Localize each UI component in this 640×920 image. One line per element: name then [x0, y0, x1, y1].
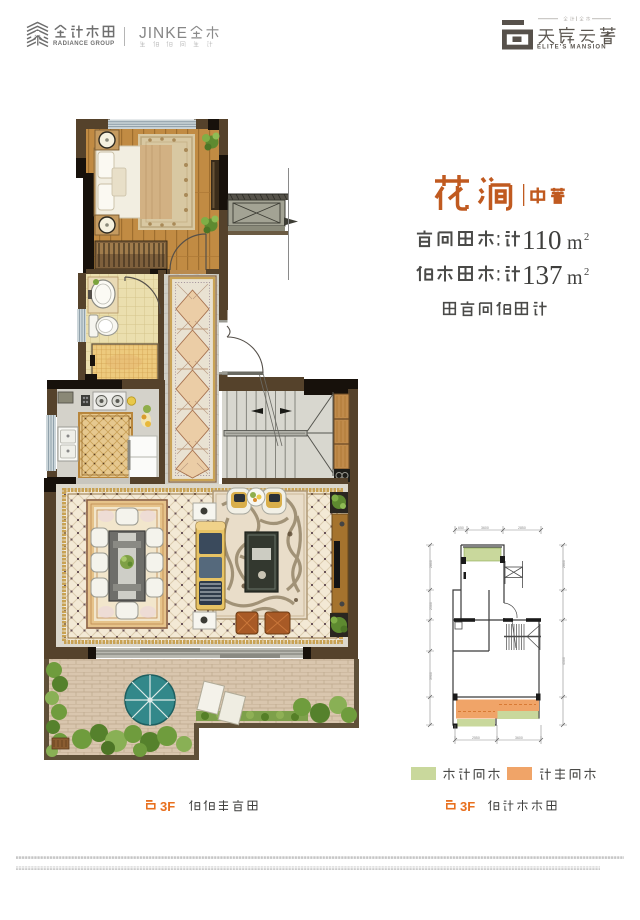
svg-text:2550: 2550 [472, 736, 480, 740]
svg-text:2800: 2800 [429, 560, 433, 568]
svg-text:2: 2 [584, 267, 589, 278]
svg-text:3F: 3F [460, 799, 475, 814]
svg-text:m: m [567, 267, 583, 289]
svg-text:2850: 2850 [518, 526, 526, 530]
svg-text:3600: 3600 [481, 526, 489, 530]
svg-text:ELITE'S MANSION: ELITE'S MANSION [537, 45, 607, 51]
svg-text:2: 2 [584, 232, 589, 243]
svg-text:3F: 3F [160, 799, 175, 814]
svg-text:m: m [567, 232, 583, 254]
svg-text:4500: 4500 [562, 657, 566, 665]
svg-text:137: 137 [522, 260, 563, 290]
svg-text:JINKE: JINKE [139, 25, 188, 42]
svg-text:RADIANCE GROUP: RADIANCE GROUP [53, 41, 115, 47]
svg-text:3600: 3600 [515, 736, 523, 740]
svg-text:110: 110 [522, 225, 562, 255]
svg-text:3900: 3900 [429, 672, 433, 680]
svg-text:2800: 2800 [562, 560, 566, 568]
svg-text:2500: 2500 [429, 602, 433, 610]
svg-text:650: 650 [458, 526, 464, 530]
